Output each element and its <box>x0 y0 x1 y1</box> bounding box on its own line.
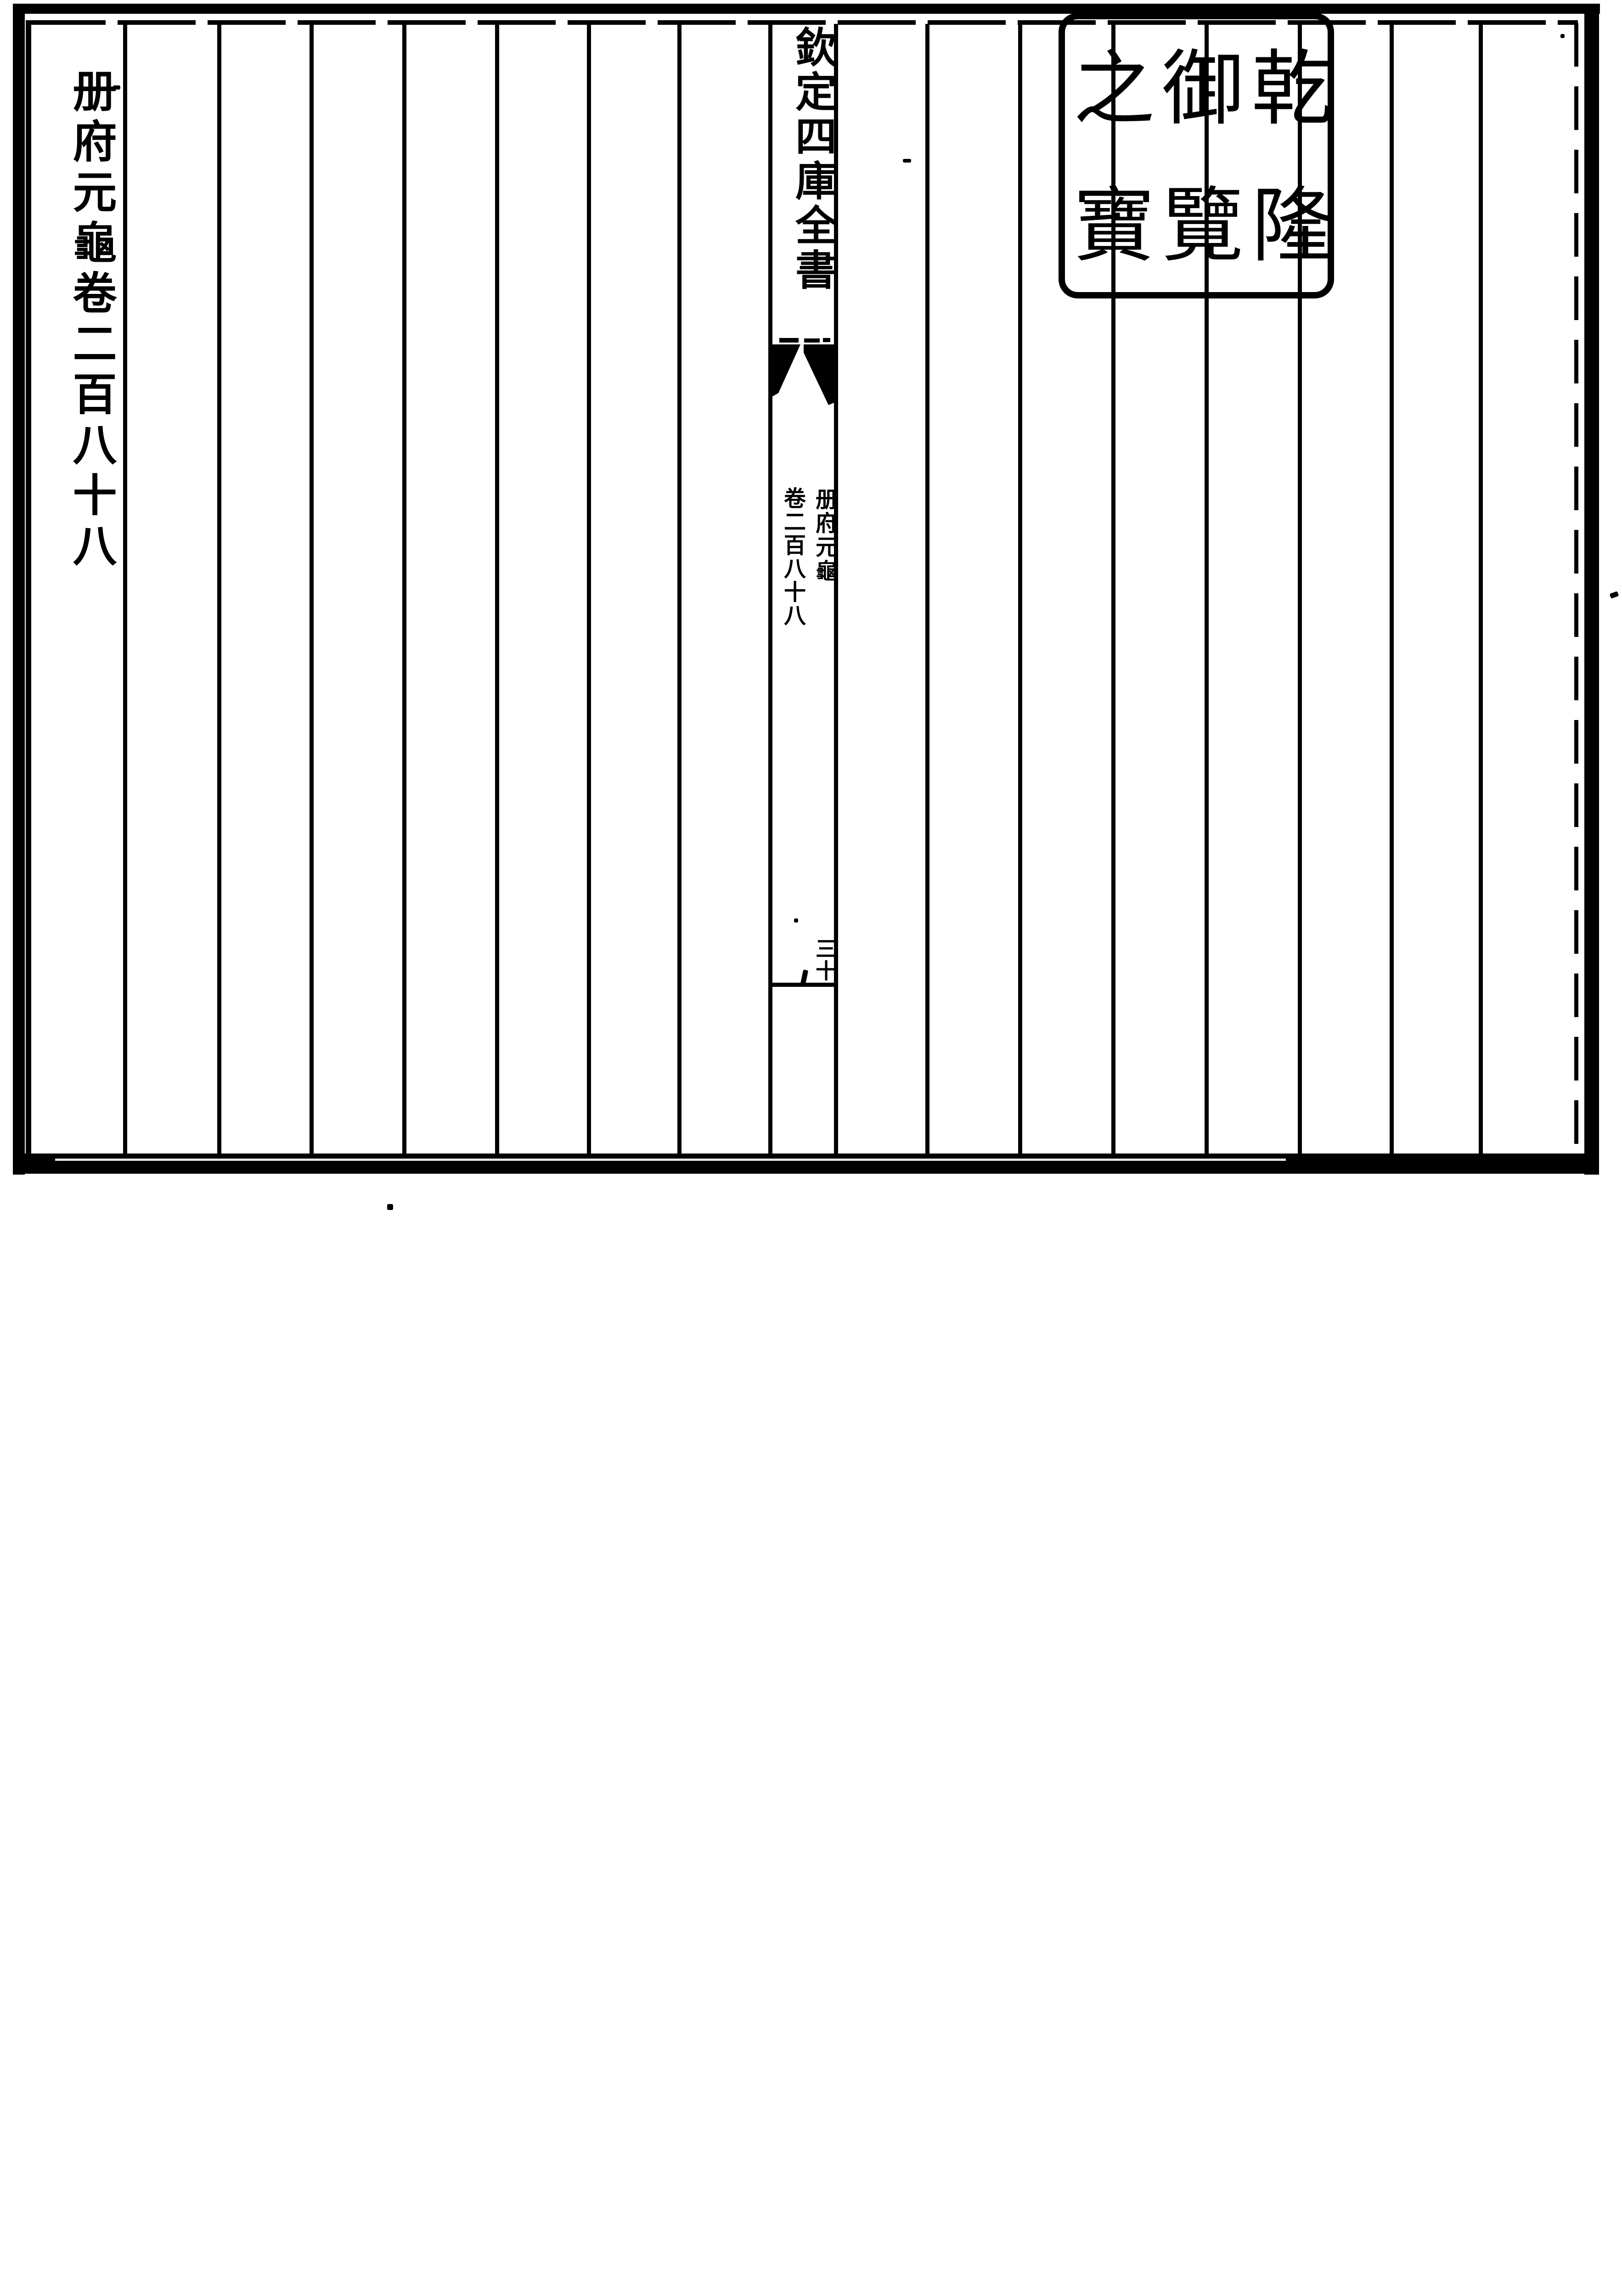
column-rule <box>1298 24 1302 1154</box>
scan-speck <box>1560 34 1565 38</box>
imperial-seal: 乾 隆 御 覽 之 寶 <box>1059 13 1334 298</box>
column-rule <box>123 24 127 1154</box>
banxin-juan-number: 卷二百八十八 <box>776 487 808 627</box>
frame-border-bottom <box>13 1154 1599 1174</box>
seal-char: 隆 <box>1249 183 1336 270</box>
column-rule <box>677 24 681 1154</box>
frame-border-left <box>13 4 25 1175</box>
seal-char: 乾 <box>1249 46 1336 133</box>
seal-char: 御 <box>1159 46 1246 133</box>
column-rule <box>1479 24 1483 1154</box>
scan-speck <box>113 85 120 90</box>
banxin-collection-header: 欽定四庫全書 <box>782 26 841 293</box>
volume-title: 册府元龜卷二百八十八 <box>59 68 123 573</box>
fishtail-mark <box>772 338 835 405</box>
scanned-page: 册府元龜卷二百八十八 欽定四庫全書 册府元龜 卷二百八十八 三十 乾 隆 御 覽… <box>0 0 1622 2296</box>
column-rule <box>310 24 314 1154</box>
frame-inner-line-top <box>28 20 1578 25</box>
column-rule <box>1205 24 1209 1154</box>
scan-speck <box>387 1204 393 1210</box>
frame-border-bottom-scan-crack <box>55 1159 1286 1161</box>
scan-speck <box>1610 591 1619 598</box>
frame-inner-line-left <box>26 20 31 1157</box>
column-rule <box>587 24 591 1154</box>
column-rule <box>925 24 929 1154</box>
frame-inner-line-right <box>1574 23 1578 1155</box>
column-rule <box>495 24 499 1154</box>
scan-speck <box>903 159 911 163</box>
scan-speck <box>794 918 798 923</box>
frame-border-top <box>13 4 1600 14</box>
column-rule <box>1018 24 1022 1154</box>
seal-char: 覽 <box>1159 183 1246 270</box>
column-rule <box>1111 24 1115 1154</box>
column-rule <box>402 24 406 1154</box>
frame-border-right <box>1584 4 1599 1175</box>
column-rule <box>1390 24 1394 1154</box>
column-rule <box>768 24 772 1154</box>
column-rule <box>217 24 221 1154</box>
column-rule <box>834 24 838 1154</box>
